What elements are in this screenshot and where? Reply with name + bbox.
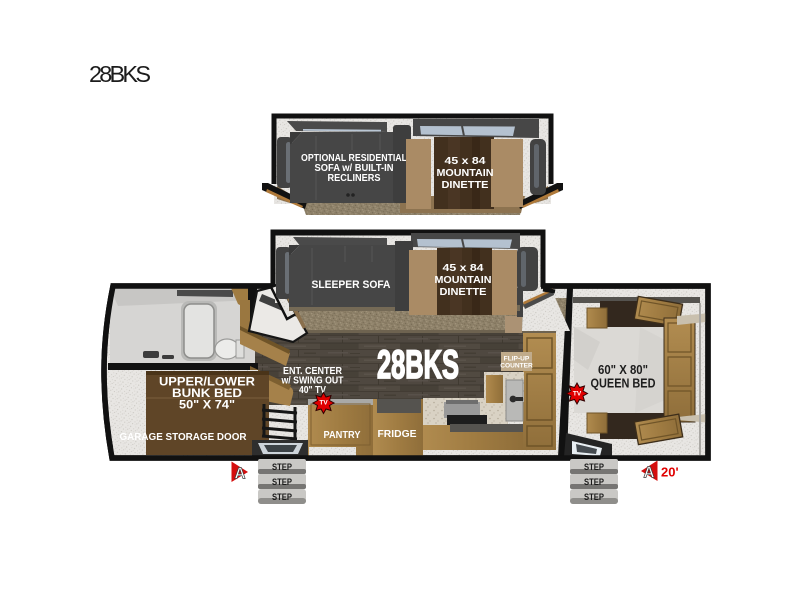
svg-text:STEP: STEP	[272, 492, 292, 502]
svg-text:DINETTE: DINETTE	[442, 180, 489, 191]
svg-text:TV: TV	[319, 400, 328, 407]
svg-text:STEP: STEP	[272, 462, 292, 472]
svg-text:QUEEN BED: QUEEN BED	[591, 376, 656, 391]
svg-text:28BKS: 28BKS	[89, 61, 151, 87]
svg-text:50" X 74": 50" X 74"	[179, 398, 235, 412]
svg-text:A: A	[643, 465, 654, 482]
svg-text:MOUNTAIN: MOUNTAIN	[437, 168, 494, 179]
svg-text:TV: TV	[573, 391, 582, 398]
svg-text:STEP: STEP	[584, 462, 604, 472]
svg-text:GARAGE STORAGE DOOR: GARAGE STORAGE DOOR	[120, 432, 247, 443]
svg-text:28BKS: 28BKS	[377, 343, 459, 387]
svg-text:PANTRY: PANTRY	[324, 429, 361, 441]
svg-text:20': 20'	[661, 465, 679, 480]
svg-text:FRIDGE: FRIDGE	[378, 428, 417, 440]
svg-text:45 x 84: 45 x 84	[445, 156, 486, 167]
svg-text:MOUNTAIN: MOUNTAIN	[435, 275, 492, 286]
svg-text:FLIP-UP: FLIP-UP	[504, 356, 530, 363]
svg-text:STEP: STEP	[584, 477, 604, 487]
svg-text:RECLINERS: RECLINERS	[328, 173, 381, 184]
svg-text:COUNTER: COUNTER	[500, 363, 533, 370]
svg-text:45 x 84: 45 x 84	[443, 263, 484, 274]
svg-text:STEP: STEP	[272, 477, 292, 487]
svg-text:STEP: STEP	[584, 492, 604, 502]
svg-text:DINETTE: DINETTE	[440, 287, 487, 298]
svg-text:A: A	[234, 466, 245, 483]
svg-text:SLEEPER SOFA: SLEEPER SOFA	[312, 279, 391, 291]
